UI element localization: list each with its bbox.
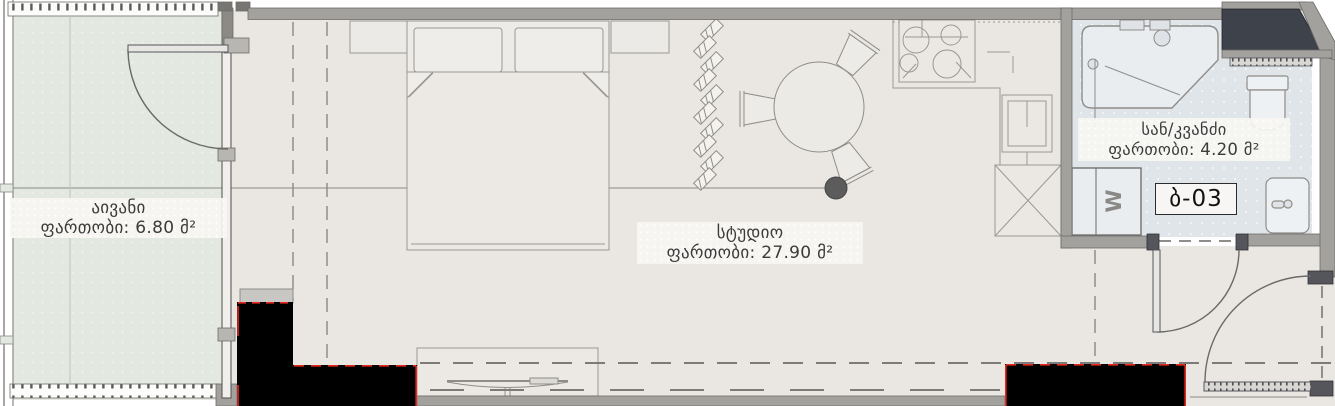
balcony-railing-bottom — [10, 384, 218, 398]
door-jamb — [1236, 234, 1248, 250]
door-jamb — [1147, 234, 1159, 250]
balcony-area: ფართობი: 6.80 მ² — [10, 218, 227, 238]
bottom-wall — [417, 396, 1005, 406]
washer-label: W — [1102, 189, 1126, 212]
washing-machine: W — [1072, 168, 1141, 235]
door-leaf — [1204, 382, 1311, 391]
bathroom-area: ფართობი: 4.20 მ² — [1078, 140, 1290, 160]
window-sill — [218, 328, 235, 341]
balcony-railing-top — [8, 2, 218, 16]
bathroom-bottom-wall — [1061, 236, 1147, 248]
studio-label: სტუდიო ფართობი: 27.90 მ² — [637, 222, 863, 264]
door-jamb — [1310, 381, 1333, 396]
balcony-name: აივანი — [10, 198, 227, 218]
rail-tick — [0, 336, 13, 344]
shower-mixer — [1150, 20, 1170, 30]
studio-area: ფართობი: 27.90 მ² — [637, 243, 863, 263]
shower-head-icon — [1154, 30, 1170, 46]
unit-tag-label: ბ-03 — [1169, 186, 1222, 212]
double-bed — [407, 21, 609, 250]
potted-plant — [825, 177, 847, 199]
bathroom-left-wall — [1061, 8, 1072, 248]
vent-grille — [1230, 58, 1312, 66]
door-leaf — [1153, 250, 1160, 332]
bathroom-label: სან/კვანძი ფართობი: 4.20 მ² — [1078, 118, 1290, 161]
door-leaf — [128, 45, 228, 52]
wall-block — [1222, 50, 1332, 58]
column — [293, 365, 417, 406]
balcony-label: აივანი ფართობი: 6.80 მ² — [10, 198, 227, 238]
round-dining-table — [774, 62, 864, 152]
shaft-x-box — [995, 165, 1061, 236]
floor-plan-canvas: W — [0, 0, 1335, 406]
studio-name: სტუდიო — [637, 223, 863, 243]
shower-mixer — [1120, 20, 1144, 30]
bathroom-name: სან/კვანძი — [1078, 120, 1290, 140]
rail-tick — [0, 184, 13, 192]
right-wall — [1320, 44, 1335, 277]
column — [237, 302, 293, 406]
stove-4-burners — [899, 20, 975, 82]
wall-block — [240, 289, 293, 303]
column — [1005, 364, 1186, 406]
window-sill — [218, 148, 235, 161]
top-wall — [248, 8, 1072, 20]
tv-stand — [417, 348, 598, 396]
door-jamb — [1308, 271, 1333, 284]
wall-block — [218, 2, 232, 11]
bathroom-sink — [1266, 178, 1309, 233]
nightstand-left — [350, 21, 407, 53]
bathroom-top-wall — [1061, 8, 1222, 20]
unit-tag: ბ-03 — [1155, 183, 1237, 215]
nightstand-right — [611, 21, 669, 53]
